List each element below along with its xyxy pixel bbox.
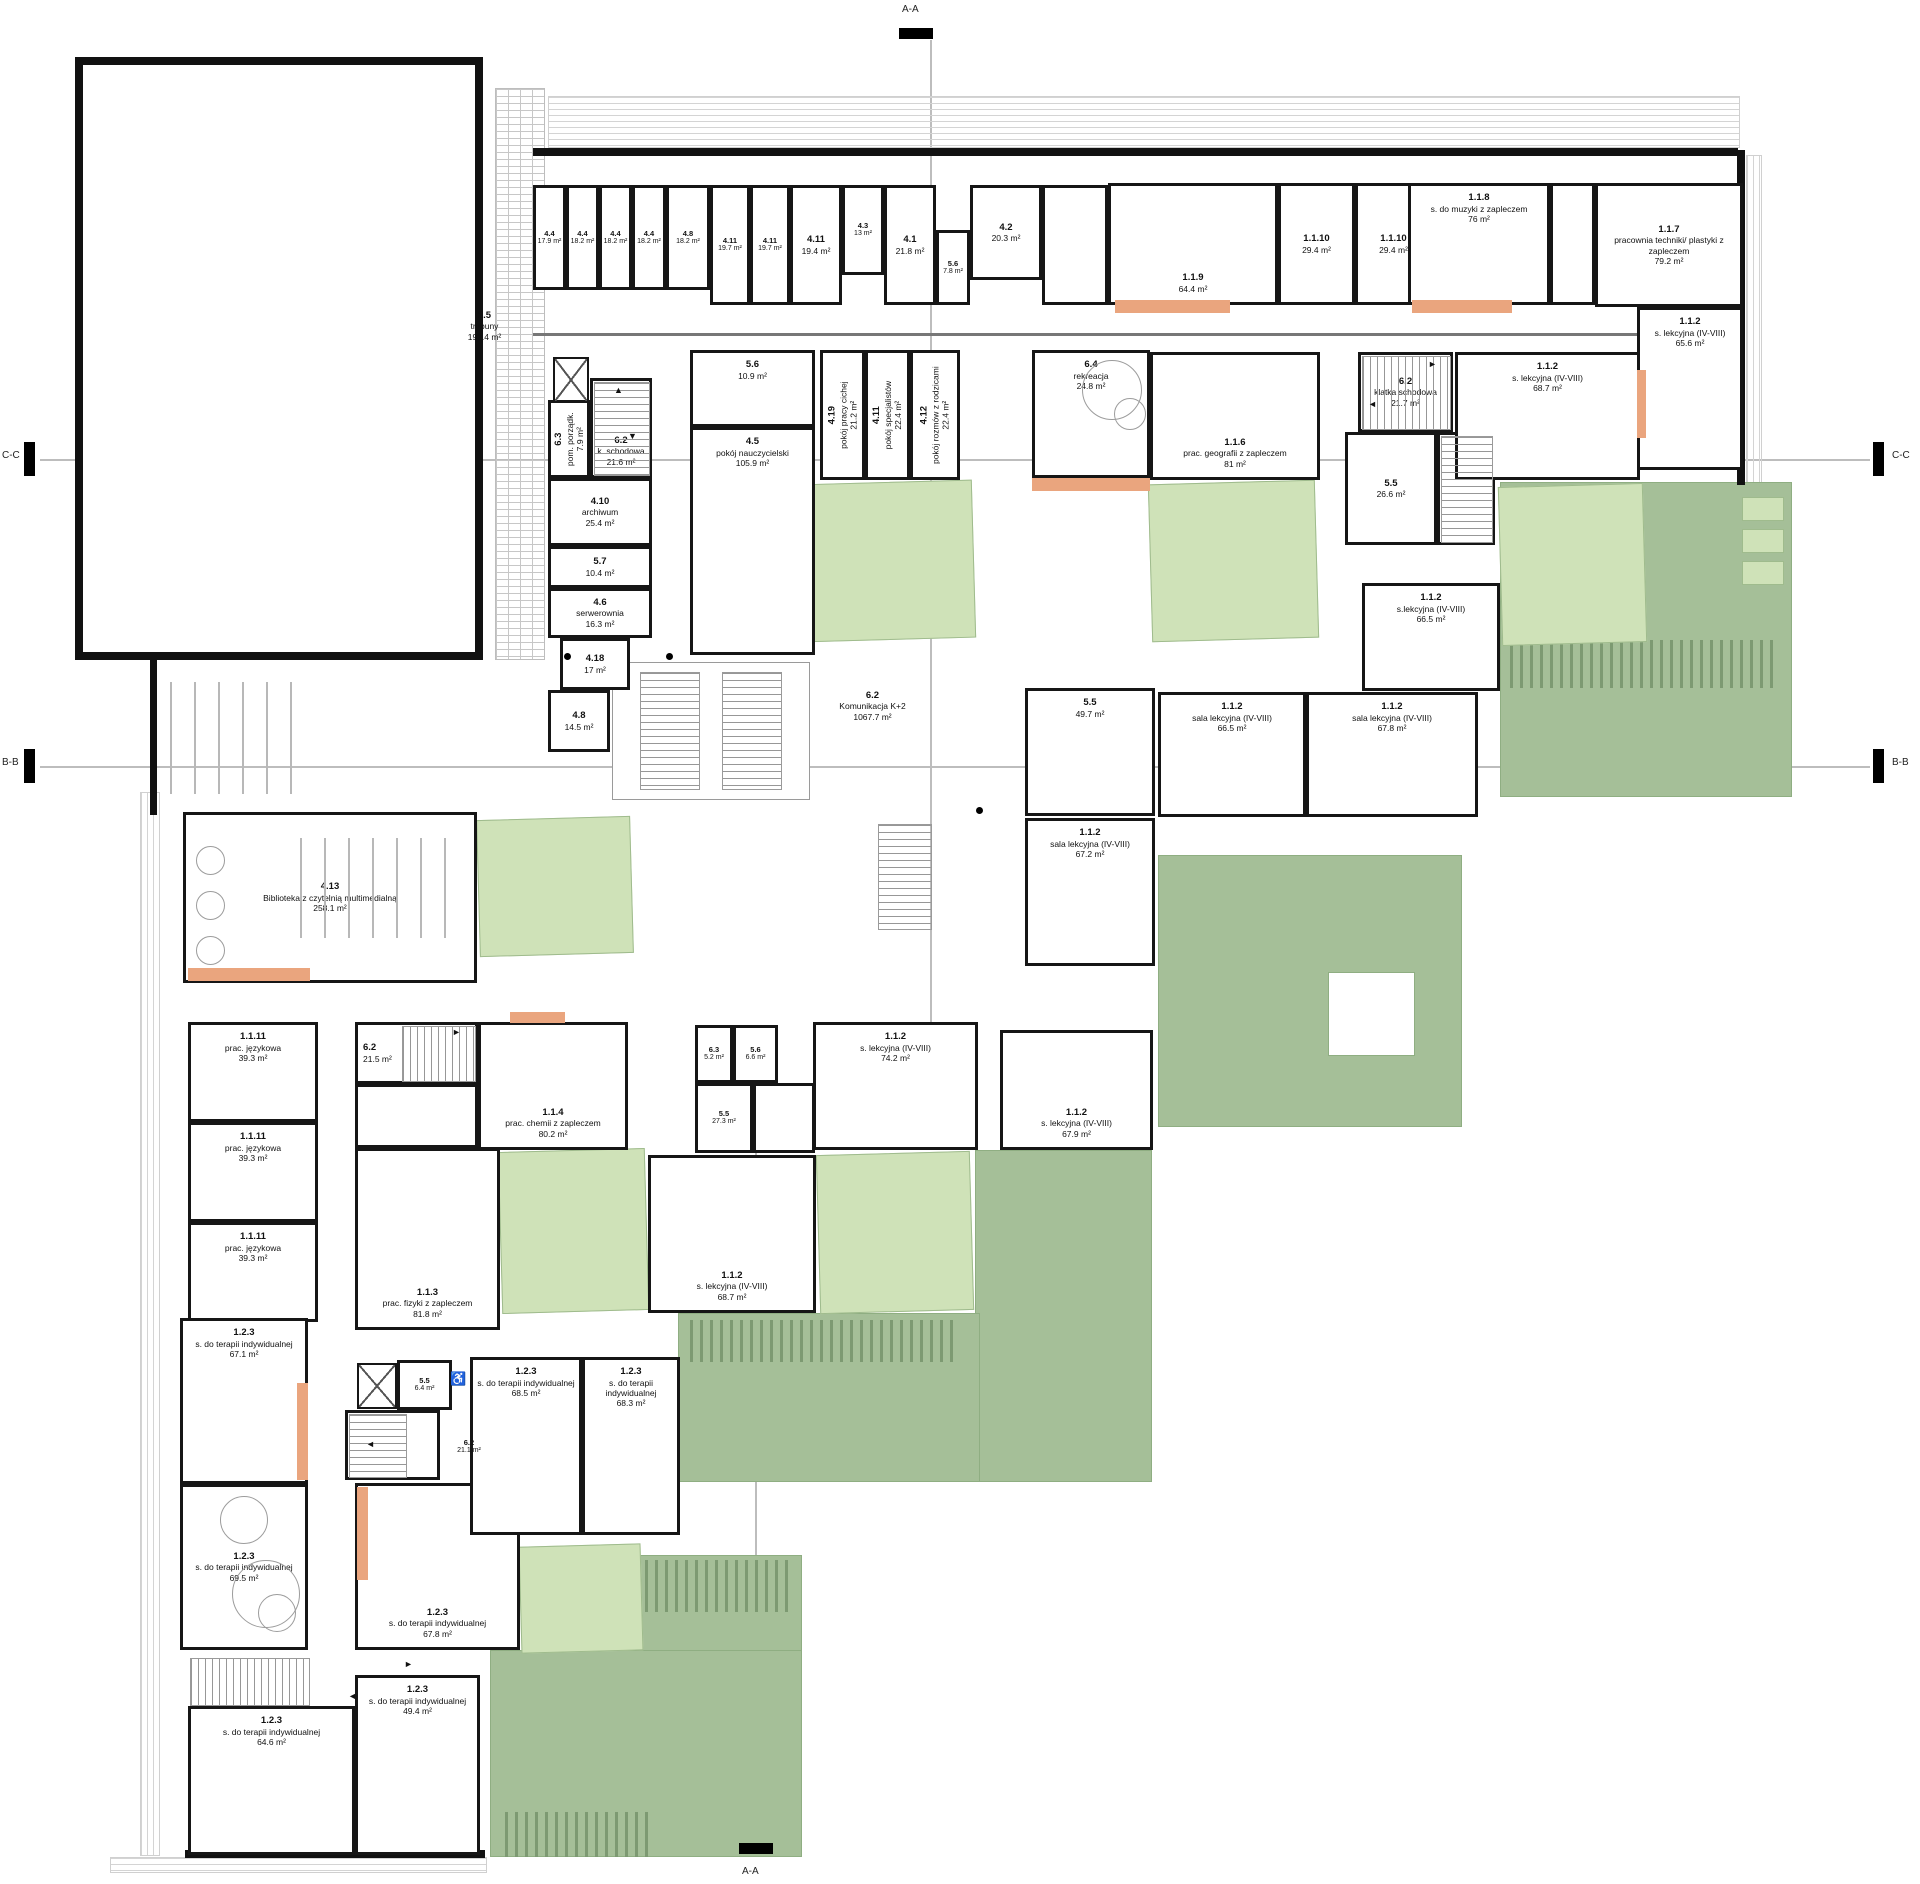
room-label: 4.19pokój pracy cichej21.2 m² bbox=[826, 381, 858, 449]
room-4-4: 4.418.2 m² bbox=[566, 185, 599, 290]
accent-strip bbox=[1412, 300, 1512, 313]
patio bbox=[498, 1148, 649, 1314]
section-tick bbox=[899, 28, 933, 39]
accent-strip bbox=[1115, 300, 1230, 313]
wall-segment bbox=[150, 660, 157, 815]
room-label: 4.5pokój nauczycielski105.9 m² bbox=[716, 436, 789, 468]
room-label: 5.66.6 m² bbox=[746, 1045, 766, 1063]
skylight bbox=[1328, 972, 1415, 1056]
round-furniture bbox=[258, 1594, 296, 1632]
patio bbox=[1742, 529, 1784, 553]
room-1-1-11: 1.1.11prac. językowa39.3 m² bbox=[188, 1222, 318, 1322]
column-dot bbox=[666, 653, 673, 660]
room-label: 1.1.1029.4 m² bbox=[1302, 233, 1331, 255]
floor-plan: A-A A-A C-C B-B C-C B-B 2.5trybuny192.4 … bbox=[0, 0, 1920, 1884]
gym-hall bbox=[75, 57, 483, 660]
stairs bbox=[190, 1658, 310, 1706]
room-label: 5.526.6 m² bbox=[1377, 478, 1406, 500]
room-label: 1.1.7pracownia techniki/ plastyki z zapl… bbox=[1598, 224, 1740, 267]
room-5-6: 5.66.6 m² bbox=[733, 1025, 778, 1083]
room-label: 1.2.3s. do terapii indywidualnej68.3 m² bbox=[585, 1366, 677, 1409]
room-6-3: 6.3pom. porządk.7.9 m² bbox=[548, 400, 590, 478]
room-label: 1.1.2s.lekcyjna (IV-VIII)66.5 m² bbox=[1397, 592, 1466, 624]
room-label: 5.710.4 m² bbox=[586, 556, 615, 578]
elevator-icon bbox=[357, 1363, 397, 1409]
room-2-5: 2.5trybuny192.4 m² bbox=[427, 298, 542, 354]
room-1-1-4: 1.1.4prac. chemii z zapleczem80.2 m² bbox=[478, 1022, 628, 1150]
room-5-6: 5.610.9 m² bbox=[690, 350, 815, 427]
room-label: 6.221.5 m² bbox=[363, 1042, 392, 1064]
room-1-1-2: 1.1.2sala lekcyjna (IV-VIII)67.2 m² bbox=[1025, 818, 1155, 966]
corridor-wall bbox=[533, 333, 1738, 336]
service-room bbox=[355, 1084, 478, 1148]
room-label: 1.2.3s. do terapii indywidualnej64.6 m² bbox=[223, 1715, 320, 1747]
stairs bbox=[402, 1026, 476, 1082]
room-5-5: 5.527.3 m² bbox=[695, 1083, 753, 1153]
room-4-4: 4.418.2 m² bbox=[599, 185, 632, 290]
room-1-1-2: 1.1.2s. lekcyjna (IV-VIII)74.2 m² bbox=[813, 1022, 978, 1150]
room-label: 6.2Komunikacja K+21067.7 m² bbox=[839, 690, 905, 722]
room-label: 4.11pokój specjalistów22.4 m² bbox=[871, 381, 903, 450]
section-marker-left-c: C-C bbox=[2, 450, 20, 461]
room-label: 4.1119.4 m² bbox=[802, 234, 831, 256]
room-label: 1.1.3prac. fizyki z zapleczem81.8 m² bbox=[383, 1287, 473, 1319]
room-label: 1.1.2s. lekcyjna (IV-VIII)67.9 m² bbox=[1041, 1107, 1112, 1139]
trybuny-strip bbox=[495, 88, 545, 660]
room-label: 1.1.964.4 m² bbox=[1179, 272, 1208, 294]
room-label: 4.6serwerownia16.3 m² bbox=[576, 597, 624, 629]
room-4-4: 4.418.2 m² bbox=[632, 185, 666, 290]
room-4-11: 4.1119.7 m² bbox=[710, 185, 750, 305]
room-1-1-6: 1.1.6prac. geografii z zapleczem81 m² bbox=[1150, 352, 1320, 480]
room-1-2-3: 1.2.3s. do terapii indywidualnej67.1 m² bbox=[180, 1318, 308, 1484]
room-label: 4.417.9 m² bbox=[538, 229, 562, 247]
accent-strip bbox=[1032, 478, 1150, 491]
patio bbox=[476, 816, 634, 957]
room-1-1-11: 1.1.11prac. językowa39.3 m² bbox=[188, 1122, 318, 1222]
room-label: 5.67.8 m² bbox=[943, 259, 963, 277]
section-marker-top: A-A bbox=[902, 4, 919, 15]
room-label: 2.5trybuny192.4 m² bbox=[468, 310, 502, 342]
room-1-2-3: 1.2.3s. do terapii indywidualnej68.3 m² bbox=[582, 1357, 680, 1535]
stair-direction-icon: ◄ bbox=[1368, 400, 1380, 412]
accessible-icon: ♿ bbox=[450, 1372, 466, 1388]
room-4-18: 4.1817 m² bbox=[560, 638, 630, 690]
room-label: 6.221.1 m² bbox=[457, 1438, 481, 1456]
section-tick bbox=[739, 1843, 773, 1854]
round-furniture bbox=[196, 936, 225, 965]
room-1-1-2: 1.1.2sala lekcyjna (IV-VIII)66.5 m² bbox=[1158, 692, 1306, 817]
room-label: 1.1.1029.4 m² bbox=[1379, 233, 1408, 255]
room-1-1-10: 1.1.1029.4 m² bbox=[1278, 183, 1355, 305]
accent-strip bbox=[357, 1487, 368, 1580]
room-4-2: 4.220.3 m² bbox=[970, 185, 1042, 280]
room-6-2: 6.2Komunikacja K+21067.7 m² bbox=[800, 676, 945, 736]
room-4-5: 4.5pokój nauczycielski105.9 m² bbox=[690, 427, 815, 655]
room-label: 4.220.3 m² bbox=[992, 222, 1021, 244]
room-label: 1.1.2s. lekcyjna (IV-VIII)74.2 m² bbox=[860, 1031, 931, 1063]
wall-segment bbox=[533, 148, 1738, 156]
room-label: 5.527.3 m² bbox=[712, 1109, 736, 1127]
room-label: 4.814.5 m² bbox=[565, 710, 594, 732]
deck-hatch bbox=[690, 1320, 958, 1362]
patio bbox=[798, 480, 976, 643]
room-label: 6.3pom. porządk.7.9 m² bbox=[553, 412, 585, 466]
stairs bbox=[349, 1414, 407, 1478]
room-6-2: 6.221.1 m² bbox=[440, 1424, 498, 1470]
room-label: 1.1.11prac. językowa39.3 m² bbox=[225, 1031, 281, 1063]
stair-direction-icon: ► bbox=[404, 1660, 416, 1672]
stair-direction-icon: ◄ bbox=[366, 1440, 378, 1452]
stairs bbox=[722, 672, 782, 790]
room-1-1-3: 1.1.3prac. fizyki z zapleczem81.8 m² bbox=[355, 1148, 500, 1330]
room-4-11: 4.1119.4 m² bbox=[790, 185, 842, 305]
room-label: 1.1.6prac. geografii z zapleczem81 m² bbox=[1183, 437, 1286, 469]
room-5-7: 5.710.4 m² bbox=[548, 546, 652, 588]
room-label: 1.1.2sala lekcyjna (IV-VIII)67.2 m² bbox=[1050, 827, 1130, 859]
section-tick bbox=[24, 749, 35, 783]
facade-hatch bbox=[548, 96, 1740, 148]
room-4-1: 4.121.8 m² bbox=[884, 185, 936, 305]
room-1-1-2: 1.1.2s. lekcyjna (IV-VIII)68.7 m² bbox=[648, 1155, 816, 1313]
room-label: 4.10archiwum25.4 m² bbox=[582, 496, 618, 528]
deck-hatch bbox=[645, 1560, 795, 1612]
room-4-19: 4.19pokój pracy cichej21.2 m² bbox=[820, 350, 865, 480]
round-furniture bbox=[196, 891, 225, 920]
section-tick bbox=[1873, 749, 1884, 783]
room-4-8: 4.814.5 m² bbox=[548, 690, 610, 752]
room-1-2-3: 1.2.3s. do terapii indywidualnej64.6 m² bbox=[188, 1706, 355, 1855]
room-label: 1.2.3s. do terapii indywidualnej67.8 m² bbox=[389, 1607, 486, 1639]
round-furniture bbox=[1114, 398, 1146, 430]
section-marker-bottom: A-A bbox=[742, 1866, 759, 1877]
room-label: 1.1.8s. do muzyki z zapleczem76 m² bbox=[1431, 192, 1528, 224]
room-1-1-2: 1.1.2s. lekcyjna (IV-VIII)65.6 m² bbox=[1637, 307, 1743, 470]
roof-garden bbox=[975, 1150, 1152, 1482]
stair-direction-icon: ► bbox=[452, 1028, 464, 1040]
room-1-1-2: 1.1.2s.lekcyjna (IV-VIII)66.5 m² bbox=[1362, 583, 1500, 691]
room-label: 4.1119.7 m² bbox=[758, 236, 782, 254]
room-4-12: 4.12pokój rozmów z rodzicami22.4 m² bbox=[910, 350, 960, 480]
room-label: 4.12pokój rozmów z rodzicami22.4 m² bbox=[919, 366, 951, 464]
deck-hatch bbox=[1510, 640, 1775, 688]
section-tick bbox=[24, 442, 35, 476]
bookshelves bbox=[300, 838, 460, 938]
section-marker-left-b: B-B bbox=[2, 757, 19, 768]
accent-strip bbox=[188, 968, 310, 981]
room-label: 4.313 m² bbox=[854, 221, 872, 239]
room-4-6: 4.6serwerownia16.3 m² bbox=[548, 588, 652, 638]
room-5-5: 5.549.7 m² bbox=[1025, 688, 1155, 816]
accent-strip bbox=[510, 1012, 565, 1023]
room-1-1-11: 1.1.11prac. językowa39.3 m² bbox=[188, 1022, 318, 1122]
bookshelves bbox=[170, 682, 305, 794]
stairs bbox=[640, 672, 700, 790]
service-room bbox=[1550, 183, 1595, 305]
accent-strip bbox=[297, 1383, 308, 1480]
round-furniture bbox=[196, 846, 225, 875]
room-4-4: 4.417.9 m² bbox=[533, 185, 566, 290]
stair-direction-icon: ► bbox=[1428, 360, 1440, 372]
room-4-3: 4.313 m² bbox=[842, 185, 884, 275]
accent-strip bbox=[1637, 370, 1646, 438]
room-label: 4.418.2 m² bbox=[637, 229, 661, 247]
facade-hatch bbox=[110, 1857, 487, 1873]
roof-garden bbox=[1158, 855, 1462, 1127]
service-room bbox=[753, 1083, 815, 1153]
room-label: 4.818.2 m² bbox=[676, 229, 700, 247]
room-1-2-3: 1.2.3s. do terapii indywidualnej49.4 m² bbox=[355, 1675, 480, 1855]
room-label: 1.1.2s. lekcyjna (IV-VIII)68.7 m² bbox=[697, 1270, 768, 1302]
section-tick bbox=[1873, 442, 1884, 476]
room-label: 6.35.2 m² bbox=[704, 1045, 724, 1063]
room-label: 1.1.4prac. chemii z zapleczem80.2 m² bbox=[505, 1107, 600, 1139]
column-dot bbox=[976, 807, 983, 814]
room-1-1-9: 1.1.964.4 m² bbox=[1108, 183, 1278, 305]
room-4-11: 4.11pokój specjalistów22.4 m² bbox=[865, 350, 910, 480]
room-label: 1.1.2s. lekcyjna (IV-VIII)65.6 m² bbox=[1655, 316, 1726, 348]
room-4-8: 4.818.2 m² bbox=[666, 185, 710, 290]
stair-direction-icon: ◄ bbox=[348, 1692, 360, 1704]
room-label: 4.418.2 m² bbox=[571, 229, 595, 247]
room-label: 4.418.2 m² bbox=[604, 229, 628, 247]
room-4-10: 4.10archiwum25.4 m² bbox=[548, 478, 652, 546]
service-room bbox=[1042, 185, 1108, 305]
room-5-5: 5.56.4 m² bbox=[397, 1360, 452, 1410]
room-label: 5.549.7 m² bbox=[1076, 697, 1105, 719]
patio bbox=[1148, 480, 1319, 643]
section-marker-right-c: C-C bbox=[1892, 450, 1910, 461]
room-4-11: 4.1119.7 m² bbox=[750, 185, 790, 305]
round-furniture bbox=[220, 1496, 268, 1544]
room-label: 5.56.4 m² bbox=[415, 1376, 435, 1394]
stair-direction-icon: ▼ bbox=[628, 432, 640, 444]
patio bbox=[816, 1151, 974, 1314]
patio bbox=[1498, 483, 1647, 646]
room-label: 4.121.8 m² bbox=[896, 234, 925, 256]
patio bbox=[519, 1543, 644, 1653]
patio bbox=[1742, 561, 1784, 585]
room-label: 4.1817 m² bbox=[584, 653, 606, 675]
room-label: 1.2.3s. do terapii indywidualnej68.5 m² bbox=[477, 1366, 574, 1398]
room-label: 1.1.2sala lekcyjna (IV-VIII)66.5 m² bbox=[1192, 701, 1272, 733]
room-6-3: 6.35.2 m² bbox=[695, 1025, 733, 1083]
room-label: 1.2.3s. do terapii indywidualnej67.1 m² bbox=[195, 1327, 292, 1359]
room-label: 1.1.11prac. językowa39.3 m² bbox=[225, 1131, 281, 1163]
stair-direction-icon: ▲ bbox=[614, 386, 626, 398]
room-label: 1.1.2sala lekcyjna (IV-VIII)67.8 m² bbox=[1352, 701, 1432, 733]
room-5-5: 5.526.6 m² bbox=[1345, 432, 1437, 545]
room-1-1-2: 1.1.2s. lekcyjna (IV-VIII)67.9 m² bbox=[1000, 1030, 1153, 1150]
room-1-1-7: 1.1.7pracownia techniki/ plastyki z zapl… bbox=[1595, 183, 1743, 307]
room-1-1-2: 1.1.2sala lekcyjna (IV-VIII)67.8 m² bbox=[1306, 692, 1478, 817]
room-label: 4.1119.7 m² bbox=[718, 236, 742, 254]
patio bbox=[1742, 497, 1784, 521]
room-label: 1.1.11prac. językowa39.3 m² bbox=[225, 1231, 281, 1263]
elevator-icon bbox=[553, 357, 589, 403]
deck-hatch bbox=[505, 1812, 655, 1857]
column-dot bbox=[564, 653, 571, 660]
room-1-1-8: 1.1.8s. do muzyki z zapleczem76 m² bbox=[1408, 183, 1550, 305]
stairs bbox=[1441, 436, 1493, 543]
stairs bbox=[878, 824, 932, 930]
room-label: 1.2.3s. do terapii indywidualnej49.4 m² bbox=[369, 1684, 466, 1716]
room-label: 1.1.2s. lekcyjna (IV-VIII)68.7 m² bbox=[1512, 361, 1583, 393]
facade-hatch bbox=[140, 792, 160, 1856]
room-label: 5.610.9 m² bbox=[738, 359, 767, 381]
section-marker-right-b: B-B bbox=[1892, 757, 1909, 768]
room-5-6: 5.67.8 m² bbox=[936, 230, 970, 305]
